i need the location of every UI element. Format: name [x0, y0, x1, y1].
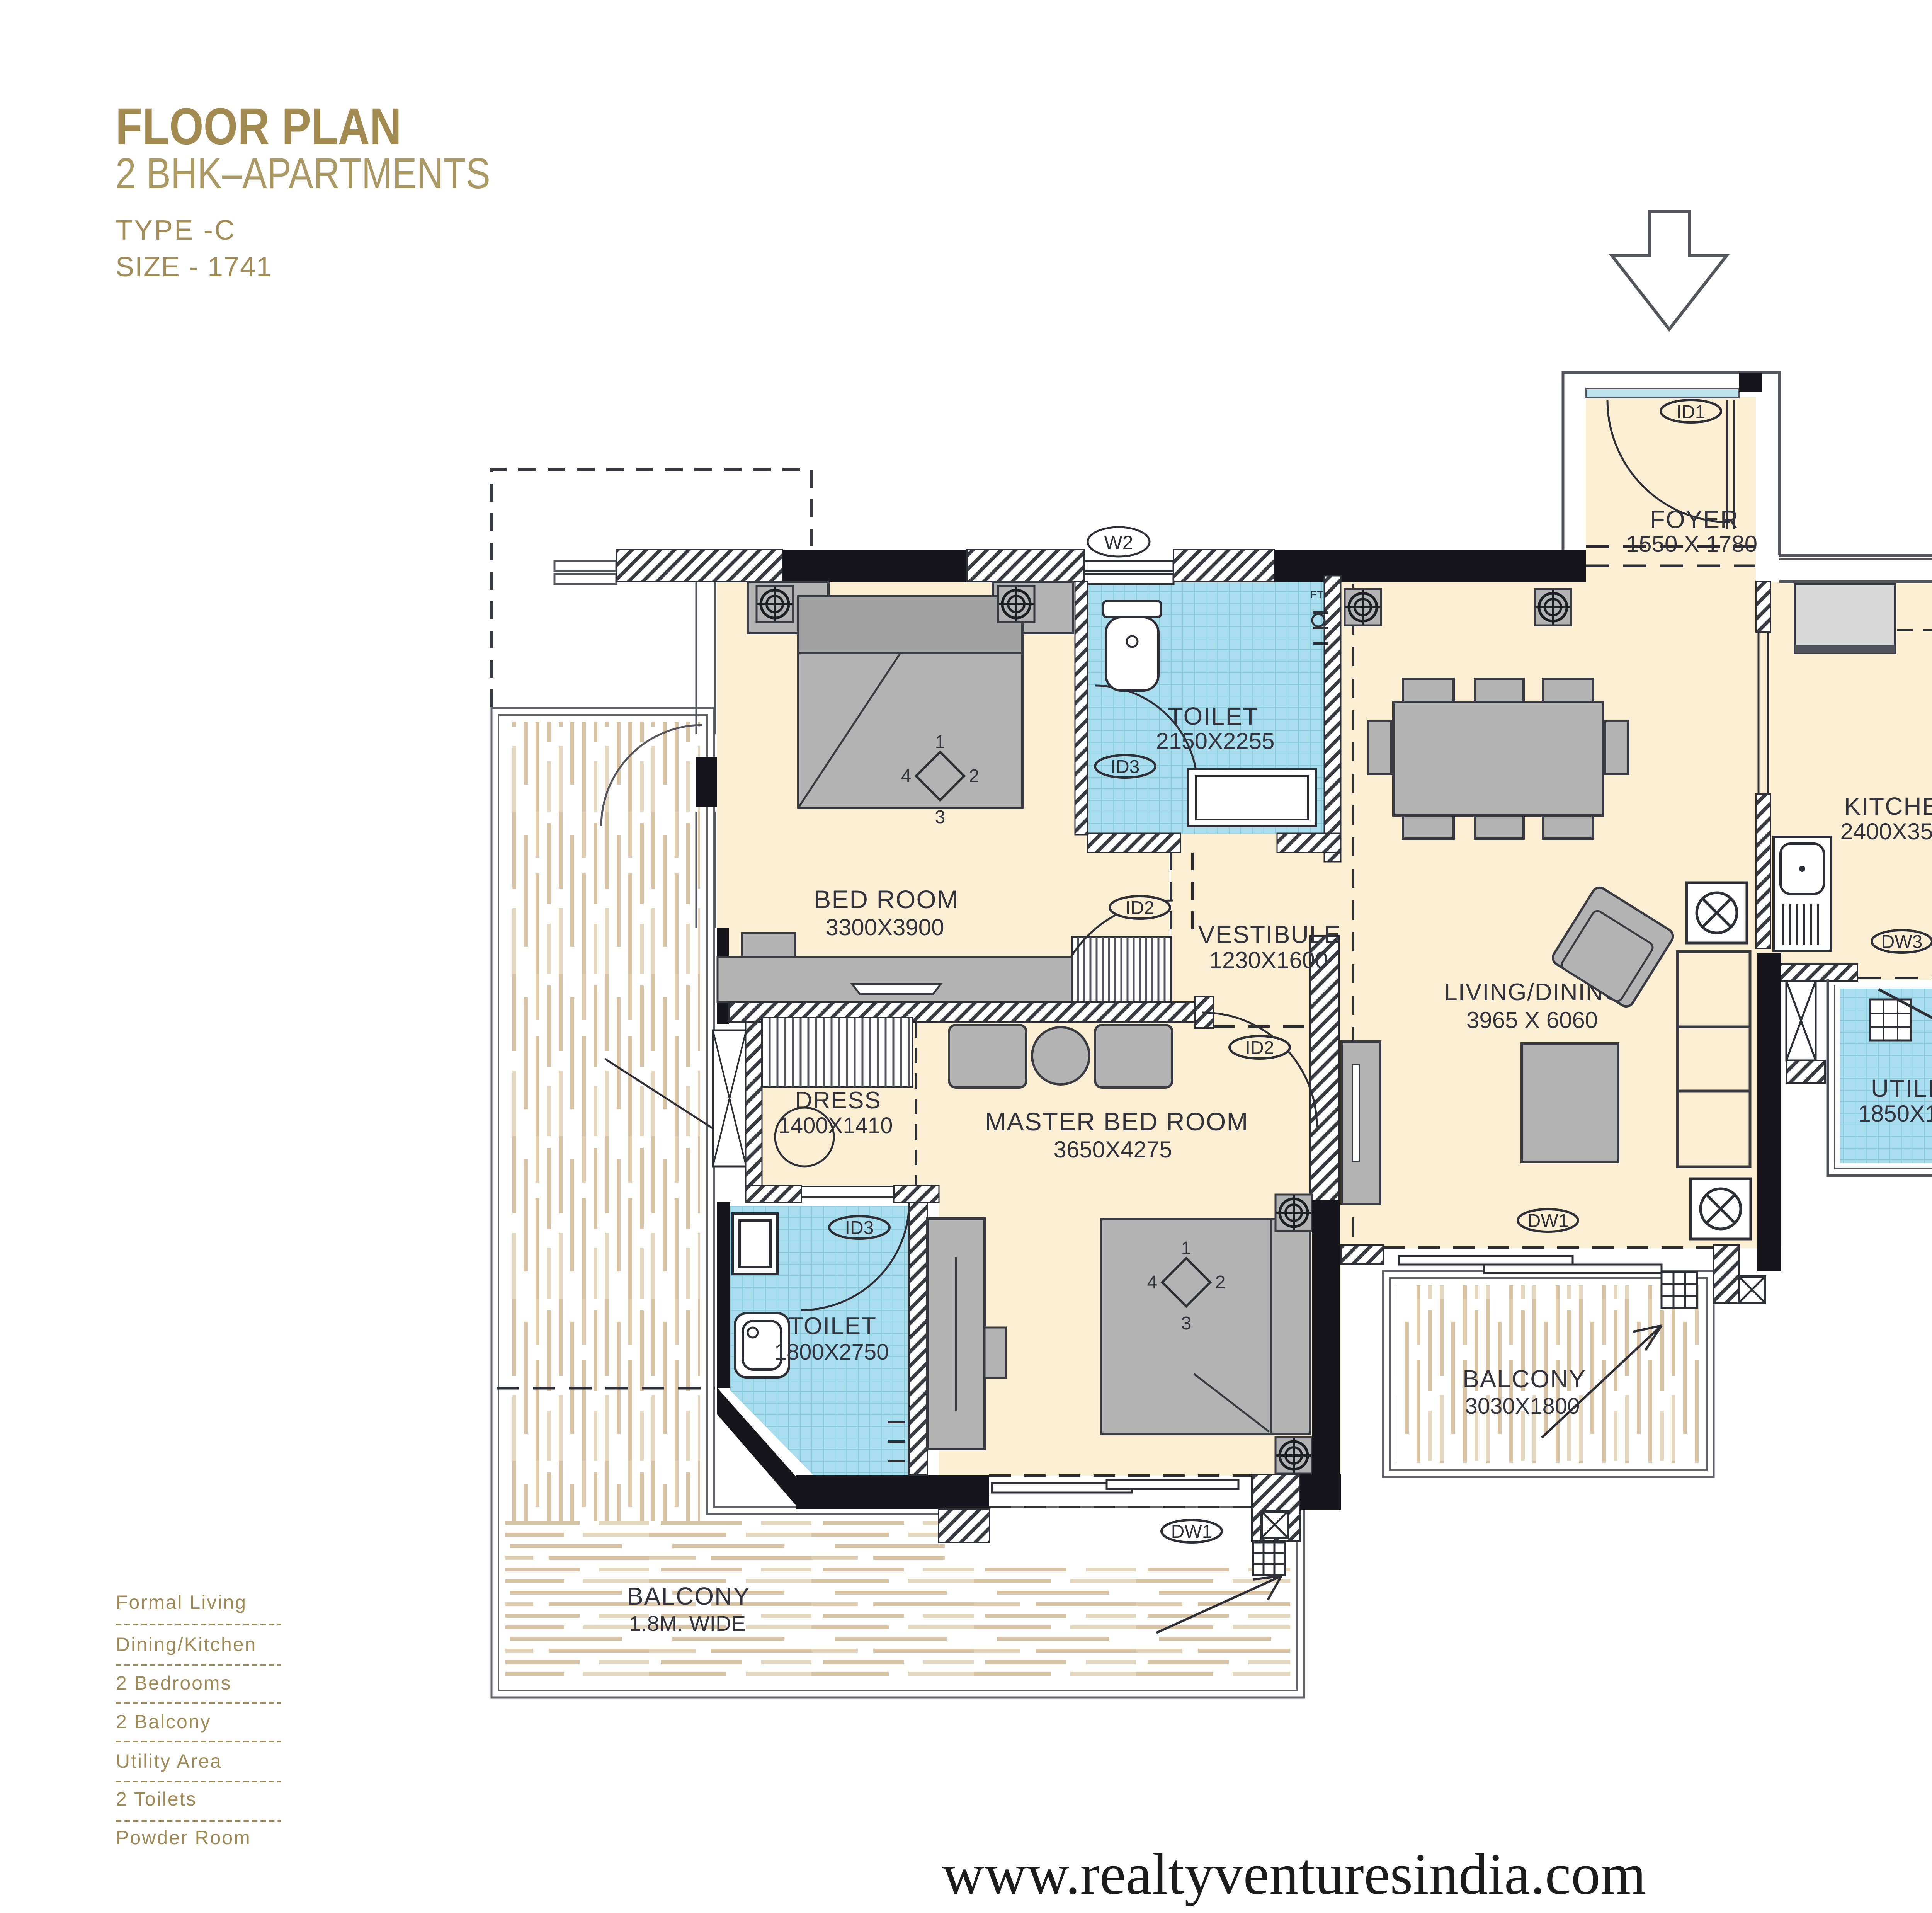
svg-text:1800X2750: 1800X2750: [774, 1339, 889, 1365]
svg-text:1.8M. WIDE: 1.8M. WIDE: [629, 1611, 746, 1636]
svg-text:Dining/Kitchen: Dining/Kitchen: [116, 1634, 257, 1655]
svg-text:1400X1410: 1400X1410: [778, 1113, 893, 1138]
svg-text:FOYER: FOYER: [1650, 505, 1739, 533]
svg-text:4: 4: [901, 766, 912, 786]
svg-text:www.realtyventuresindia.com: www.realtyventuresindia.com: [942, 1842, 1646, 1906]
svg-text:3: 3: [935, 807, 946, 827]
svg-text:2 Balcony: 2 Balcony: [116, 1711, 211, 1733]
svg-text:DW1: DW1: [1527, 1211, 1569, 1231]
svg-text:W2: W2: [1104, 532, 1133, 553]
svg-text:DW3: DW3: [1881, 932, 1923, 952]
svg-text:ID2: ID2: [1126, 898, 1155, 918]
svg-text:1850X1800: 1850X1800: [1858, 1101, 1932, 1127]
svg-text:BALCONY: BALCONY: [627, 1582, 750, 1610]
svg-text:3650X4275: 3650X4275: [1054, 1137, 1172, 1162]
svg-text:1550 X 1780: 1550 X 1780: [1626, 531, 1757, 557]
svg-text:Utility Area: Utility Area: [116, 1750, 222, 1772]
svg-text:SIZE - 1741: SIZE - 1741: [116, 252, 272, 283]
svg-text:BED ROOM: BED ROOM: [814, 885, 959, 914]
svg-text:VESTIBULE: VESTIBULE: [1198, 921, 1341, 948]
svg-text:TYPE -C: TYPE -C: [116, 215, 236, 246]
svg-text:FT: FT: [1310, 589, 1323, 601]
svg-text:Formal Living: Formal Living: [116, 1591, 247, 1613]
svg-text:DRESS: DRESS: [795, 1087, 881, 1114]
svg-text:MASTER BED ROOM: MASTER BED ROOM: [985, 1107, 1249, 1136]
svg-text:FLOOR PLAN: FLOOR PLAN: [116, 98, 401, 155]
svg-text:DW1: DW1: [1171, 1522, 1213, 1542]
svg-text:BALCONY: BALCONY: [1463, 1365, 1586, 1393]
svg-text:Powder Room: Powder Room: [116, 1827, 251, 1848]
svg-text:ID2: ID2: [1245, 1038, 1274, 1058]
svg-text:3300X3900: 3300X3900: [826, 914, 944, 940]
svg-text:TOILET: TOILET: [789, 1313, 877, 1339]
svg-text:ID3: ID3: [845, 1218, 874, 1238]
svg-text:2: 2: [969, 766, 980, 786]
svg-text:ID3: ID3: [1111, 757, 1140, 777]
svg-text:2 Bedrooms: 2 Bedrooms: [116, 1672, 232, 1694]
svg-text:UTILITY: UTILITY: [1871, 1074, 1932, 1102]
svg-text:1: 1: [1181, 1238, 1192, 1259]
svg-text:TOILET: TOILET: [1168, 702, 1259, 730]
svg-text:1230X1600: 1230X1600: [1209, 947, 1328, 973]
svg-text:ID1: ID1: [1677, 402, 1706, 422]
svg-text:2 Toilets: 2 Toilets: [116, 1788, 197, 1810]
svg-text:2400X3540: 2400X3540: [1840, 819, 1932, 844]
svg-text:2150X2255: 2150X2255: [1156, 728, 1275, 754]
svg-text:2 BHK–APARTMENTS: 2 BHK–APARTMENTS: [116, 149, 490, 197]
svg-text:3965 X 6060: 3965 X 6060: [1466, 1007, 1598, 1033]
svg-text:3030X1800: 3030X1800: [1465, 1394, 1580, 1419]
svg-text:4: 4: [1147, 1272, 1158, 1293]
svg-text:2: 2: [1215, 1272, 1226, 1293]
svg-text:3: 3: [1181, 1313, 1192, 1334]
svg-text:KITCHEN: KITCHEN: [1844, 792, 1932, 820]
svg-text:1: 1: [935, 732, 946, 752]
